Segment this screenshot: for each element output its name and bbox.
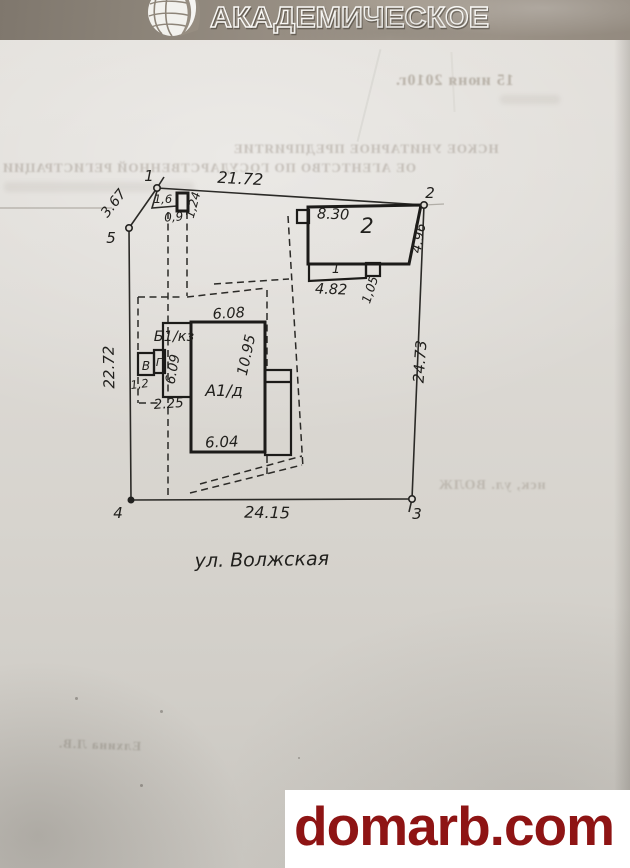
dim-a1-top: 6.08 [212, 305, 245, 323]
dim-porch-width: 4.82 [315, 281, 348, 298]
dim-side-4-5: 22.72 [100, 345, 119, 388]
path-dashed [200, 456, 302, 484]
dim-bld2-top: 8.30 [317, 206, 350, 223]
vertex-3-marker [409, 496, 415, 502]
shed-v-label: В [142, 359, 150, 373]
dim-gate-side: 1,24 [183, 190, 203, 219]
path-dashed [190, 465, 302, 493]
building-2-porch-label: 1 [332, 262, 340, 277]
vertex-2-marker [421, 202, 427, 208]
watermark-box: domarb.com [285, 790, 630, 868]
dim-a1-bottom: 6.04 [205, 432, 239, 451]
vertex-3-label: 3 [412, 505, 422, 523]
dim-bld2-right: 4.96 [409, 222, 430, 254]
dim-gate-depth: 0,9 [164, 209, 184, 224]
dim-side-5-1: 3.67 [98, 186, 130, 220]
dim-b1-width: 2.25 [153, 395, 184, 413]
dim-gate-width: 1,6 [154, 192, 172, 206]
vertex-1-marker [154, 185, 160, 191]
vertex-2-label: 2 [425, 184, 435, 202]
vertex-4-marker [128, 497, 134, 503]
dim-side-2-3: 24.73 [410, 340, 431, 384]
watermark-text: domarb.com [285, 790, 630, 856]
street-name-label: ул. Волжская [194, 548, 330, 572]
dim-shed-width: 1,2 [130, 376, 150, 392]
fence-dashed [187, 288, 267, 297]
scanned-plan-page: { "header": { "brand": "АКАДЕМИЧЕСКОЕ" }… [0, 0, 630, 868]
dim-side-3-4: 24.15 [244, 503, 290, 523]
building-2-label: 2 [360, 214, 373, 238]
vertex-4-label: 4 [113, 504, 123, 522]
fence-dashed [214, 279, 289, 284]
vertex-5-label: 5 [106, 229, 116, 247]
building-b1-label: Б1/кз [154, 329, 195, 345]
dim-a1-right: 10.95 [235, 333, 259, 377]
building-a1-label: А1/д [204, 381, 243, 400]
shed-g-label: Г [156, 356, 163, 369]
vertex-5-marker [126, 225, 132, 231]
vertex-1-label: 1 [144, 167, 154, 185]
site-plan-drawing: 1 2 3 4 5 21.72 3.67 24.73 24.15 22.72 1… [0, 0, 630, 868]
dim-side-1-2: 21.72 [217, 168, 264, 189]
